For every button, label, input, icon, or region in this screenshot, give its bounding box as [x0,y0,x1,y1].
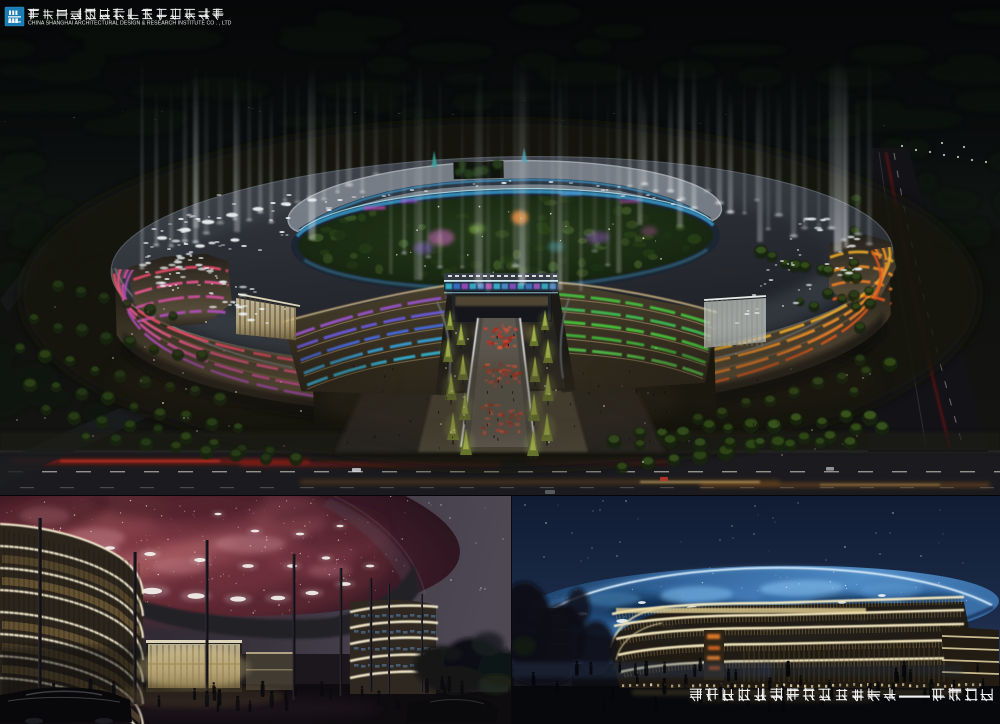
svg-text:CHINA SHANGHAI ARCHITECTURAL D: CHINA SHANGHAI ARCHITECTURAL DESIGN & RE… [28,21,232,27]
